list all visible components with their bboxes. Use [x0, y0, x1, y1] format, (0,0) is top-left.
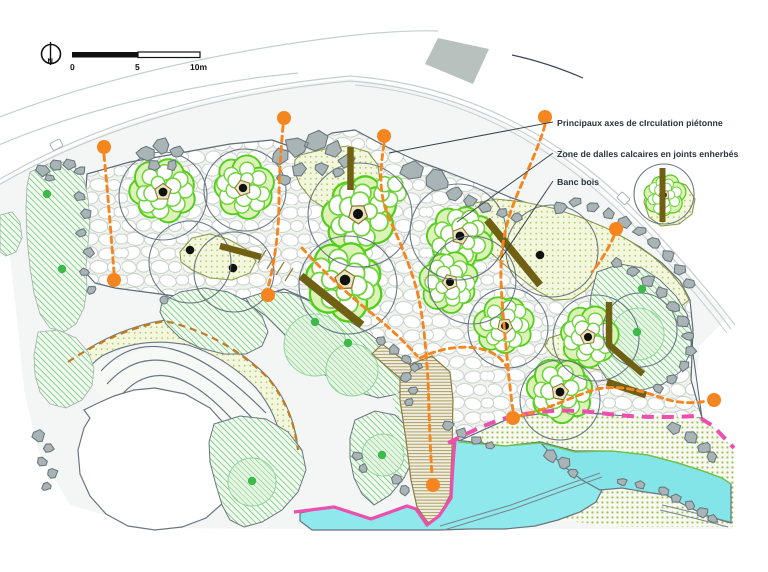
- svg-text:5: 5: [135, 62, 140, 72]
- svg-text:Zone de dalles calcaires en jo: Zone de dalles calcaires en joints enher…: [557, 149, 738, 159]
- svg-text:0: 0: [70, 62, 75, 72]
- svg-text:Banc bois: Banc bois: [557, 177, 599, 187]
- svg-text:N: N: [48, 57, 53, 66]
- svg-text:Principaux axes de cIrculation: Principaux axes de cIrculation piétonne: [557, 118, 723, 128]
- svg-text:10m: 10m: [190, 62, 207, 72]
